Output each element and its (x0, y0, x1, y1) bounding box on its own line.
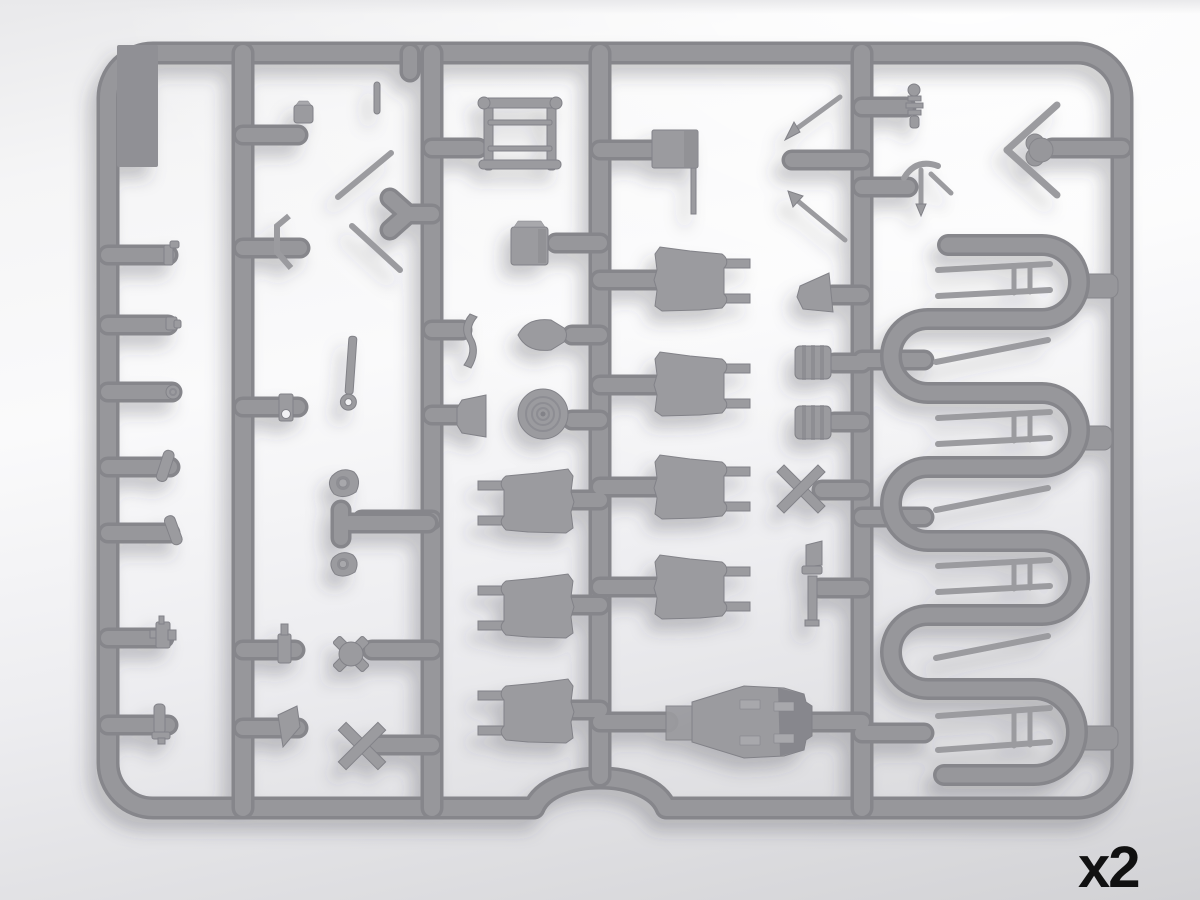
rod-part (788, 191, 845, 240)
tee-runner-part (341, 510, 428, 538)
pod-part (518, 320, 567, 351)
hook-plate-part (279, 394, 293, 421)
sprue (108, 45, 1122, 808)
seat-part (478, 679, 574, 743)
seat-part (654, 352, 750, 416)
seat-part (478, 574, 574, 638)
cowling-part (666, 686, 812, 758)
bracket-part (457, 395, 486, 437)
blade-part (464, 314, 477, 368)
parts-column-2 (277, 82, 428, 786)
small-disc-part (166, 385, 180, 399)
wheel-disc-part (518, 389, 568, 439)
knurled-post-part (906, 84, 923, 128)
ladder-frame-part (478, 97, 562, 170)
pad-part (329, 470, 358, 497)
flat-panel-part (117, 45, 158, 167)
seat-part (654, 555, 750, 619)
parts-column-5 (891, 84, 1079, 775)
product-image: x2 (0, 0, 1200, 900)
small-nub-part (166, 317, 181, 330)
seat-part (478, 469, 574, 533)
serpentine-ladder-rails (936, 264, 1050, 750)
thin-stick-part (374, 82, 380, 114)
quantity-label: x2 (1078, 834, 1188, 900)
sprue-render (0, 0, 1200, 900)
seat-part (654, 247, 750, 311)
chevron-part (1007, 105, 1057, 195)
link-arm-part (340, 336, 361, 411)
rod-part (785, 97, 840, 140)
pennant-part (278, 706, 300, 747)
flag-part (652, 130, 698, 214)
pad-part (331, 553, 357, 576)
seat-part (654, 455, 750, 519)
parts-column-3 (457, 97, 574, 743)
box-part (511, 221, 548, 265)
barrel-part (795, 345, 831, 380)
bottle-part (278, 624, 291, 663)
small-cube-part (294, 101, 313, 123)
trapezoid-part (797, 273, 833, 312)
parts-column-4 (652, 97, 845, 758)
barrel-part (795, 405, 831, 440)
